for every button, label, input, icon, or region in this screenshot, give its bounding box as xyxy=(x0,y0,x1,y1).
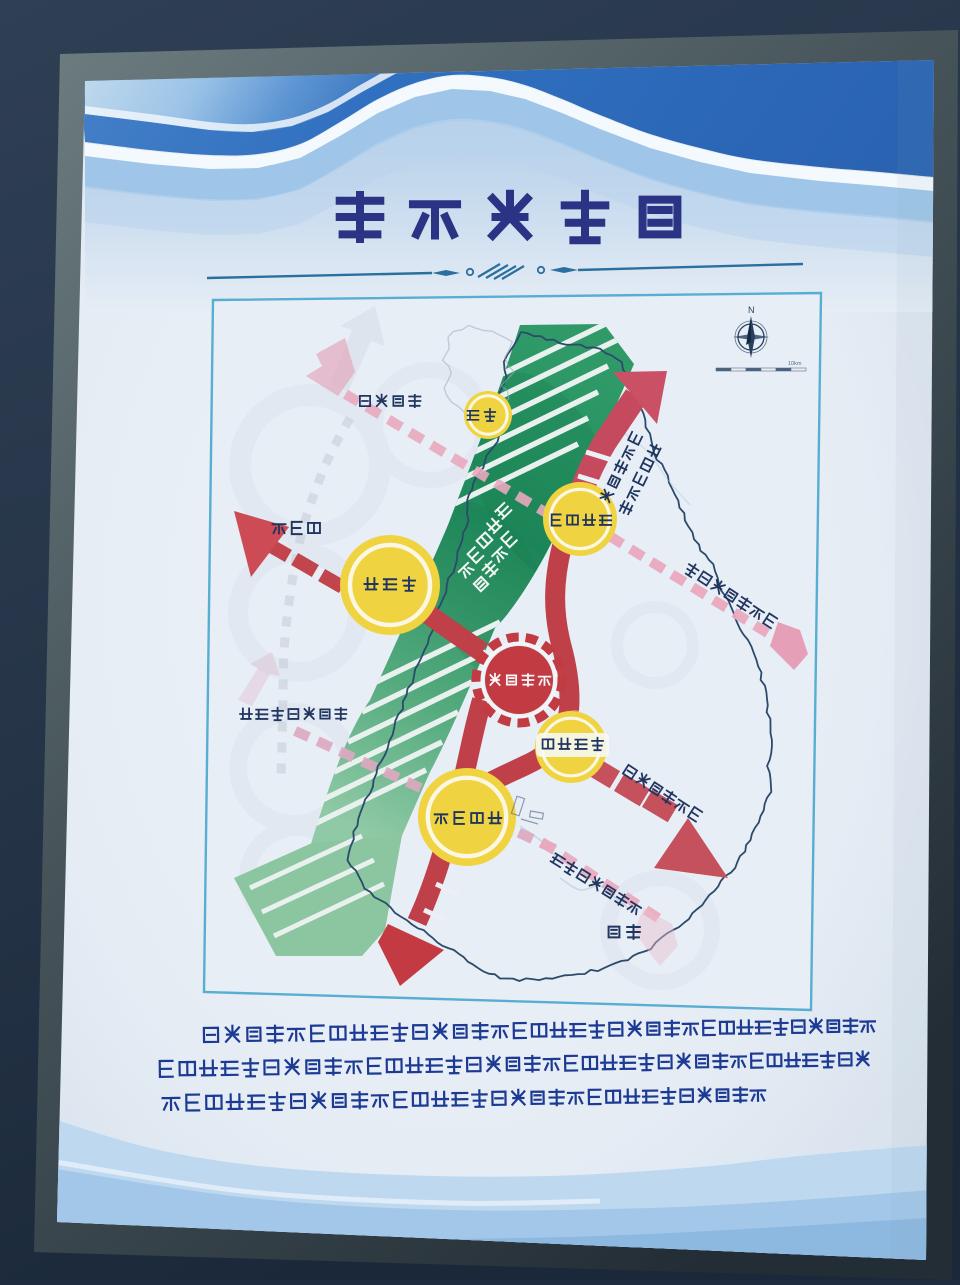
svg-text:N: N xyxy=(748,305,755,315)
svg-text:10km: 10km xyxy=(788,361,802,367)
